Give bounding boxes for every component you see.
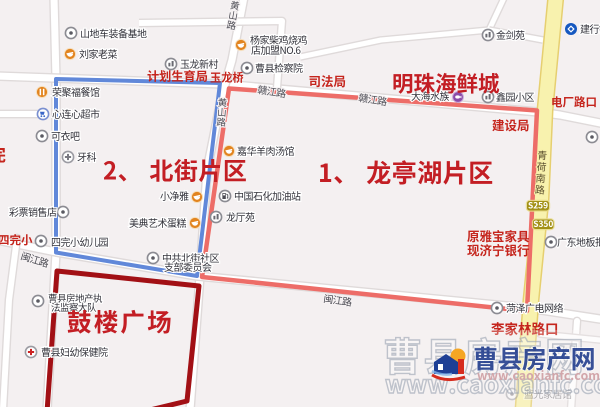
svg-text:荣聚福餐馆: 荣聚福餐馆	[52, 84, 100, 99]
svg-text:四完小幼儿园: 四完小幼儿园	[51, 234, 108, 249]
svg-text:1、 龙亭湖片区: 1、 龙亭湖片区	[318, 154, 494, 190]
svg-text:龙厅苑: 龙厅苑	[226, 209, 255, 224]
svg-text:曹县检察院: 曹县检察院	[255, 60, 303, 75]
svg-text:小净雅: 小净雅	[160, 188, 189, 203]
svg-text:司法局: 司法局	[309, 71, 347, 90]
svg-text:可衣吧: 可衣吧	[51, 128, 80, 143]
svg-text:美典艺术蛋糕: 美典艺术蛋糕	[129, 215, 186, 230]
svg-text:完: 完	[0, 141, 6, 166]
svg-text:玉龙桥: 玉龙桥	[210, 70, 244, 86]
svg-text:心连心超市: 心连心超市	[52, 106, 100, 121]
svg-text:鑫园小区: 鑫园小区	[496, 89, 534, 104]
svg-text:刘家老菜: 刘家老菜	[79, 46, 117, 61]
svg-text:路: 路	[534, 181, 545, 197]
svg-text:2、 北街片区: 2、 北街片区	[103, 152, 247, 187]
svg-text:菏泽广电网络: 菏泽广电网络	[506, 300, 563, 315]
svg-text:现济宁银行: 现济宁银行	[467, 240, 530, 259]
svg-text:鼓楼广场: 鼓楼广场	[67, 304, 174, 339]
svg-text:电厂路口: 电厂路口	[551, 94, 597, 110]
svg-text:广东地板批: 广东地板批	[557, 234, 600, 249]
svg-text:建设局: 建设局	[492, 115, 530, 134]
svg-text:牙科: 牙科	[77, 149, 96, 164]
svg-text:支部委员会: 支部委员会	[164, 259, 212, 274]
svg-text:建行银: 建行银	[580, 21, 600, 36]
svg-text:山地车装备基地: 山地车装备基地	[80, 26, 147, 41]
svg-text:中国石化加油站: 中国石化加油站	[234, 188, 301, 203]
svg-text:金剑苑: 金剑苑	[496, 27, 525, 42]
svg-text:S350: S350	[533, 218, 553, 230]
svg-text:www.caoxianfc.com: www.caoxianfc.com	[477, 366, 600, 384]
svg-text:彩票销售店: 彩票销售店	[9, 204, 57, 219]
svg-text:明珠海鲜城: 明珠海鲜城	[392, 68, 500, 99]
svg-text:店加盟NO.6: 店加盟NO.6	[251, 42, 301, 57]
svg-text:计划生育局: 计划生育局	[147, 67, 208, 85]
svg-text:S259: S259	[528, 200, 548, 212]
svg-text:四完小: 四完小	[0, 232, 33, 248]
svg-text:曹县妇幼保健院: 曹县妇幼保健院	[41, 344, 108, 359]
